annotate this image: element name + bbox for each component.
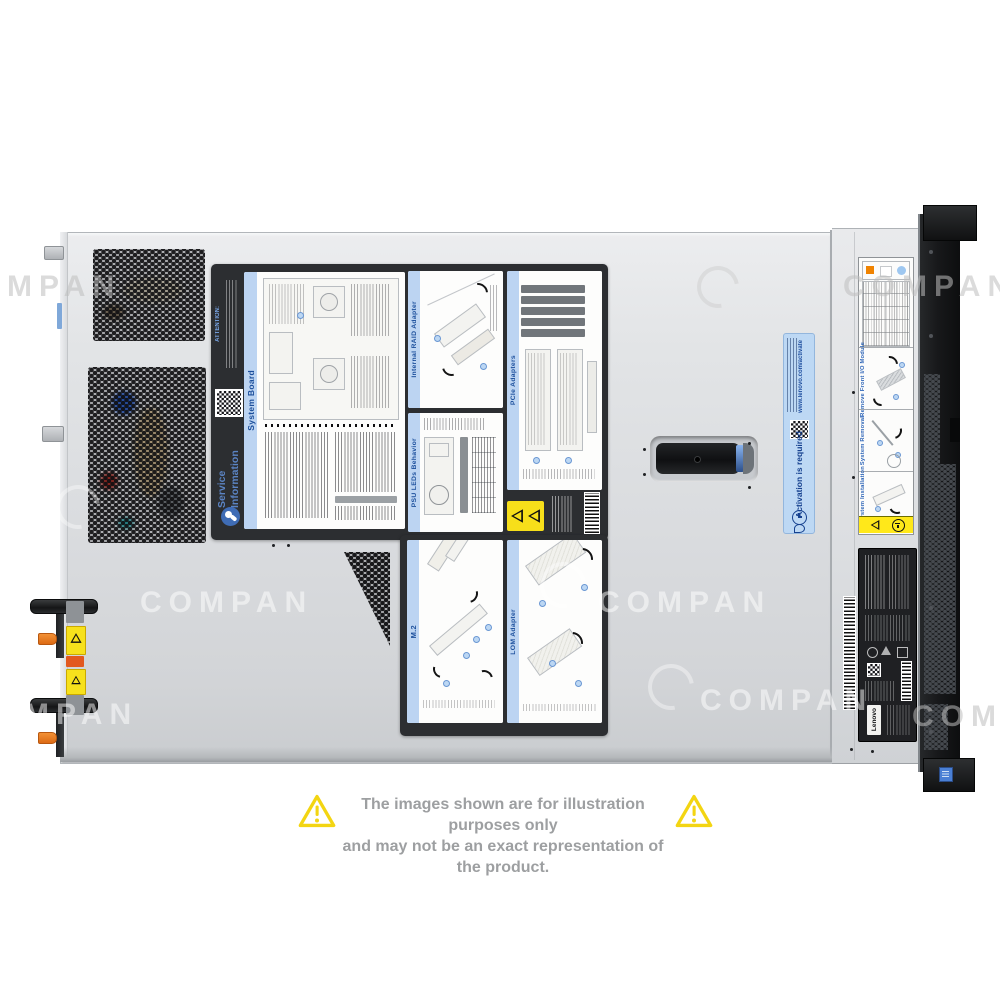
activation-title: Activation is required — [784, 440, 814, 508]
chassis-vent — [88, 367, 206, 543]
panel-title: PSU LEDs Behavior — [411, 438, 418, 507]
electrical-hazard-label — [66, 626, 86, 655]
cert-mark-icon — [897, 647, 908, 658]
rear-port-accent — [57, 303, 62, 329]
service-info-line2: Information — [229, 428, 241, 508]
activation-url-text: www.lenovo.com/activate — [798, 340, 804, 413]
service-info-line1: Service — [216, 428, 228, 508]
psu-release-latch — [38, 633, 57, 645]
recycle-mark-icon — [881, 646, 891, 655]
panel-lom-adapter: LOM Adapter — [507, 540, 602, 723]
panel-m2: M.2 — [407, 540, 503, 723]
qr-code-icon — [215, 389, 243, 417]
panel-title: PCIe Adapters — [510, 355, 517, 405]
orange-led-icon — [866, 266, 874, 274]
disclaimer-line1: The images shown are for illustration pu… — [335, 794, 671, 836]
lenovo-logo-text: Lenovo — [871, 708, 878, 731]
chassis-vent — [93, 249, 205, 341]
card-section: System Installation — [859, 471, 913, 517]
chassis-bottom-edge — [60, 747, 832, 762]
psu-body-edge — [56, 612, 64, 658]
panel-header: M.2 — [407, 540, 419, 723]
psu-led-illustration — [420, 413, 503, 532]
psu-release-latch — [38, 732, 57, 744]
section-title: Remove Front I/O Module — [860, 342, 866, 417]
chassis-rear-tab — [42, 426, 64, 442]
warning-triangle-icon — [871, 520, 880, 530]
warning-triangle-icon — [674, 792, 714, 830]
cover-seam — [830, 230, 832, 761]
warning-triangle-icon — [511, 509, 523, 523]
led-table — [862, 281, 910, 347]
warning-triangle-icon — [528, 509, 540, 523]
pcie-illustration — [519, 271, 602, 490]
panel-header: LOM Adapter — [507, 540, 519, 723]
clock-icon — [792, 510, 807, 525]
rear-service-card: Remove Front I/O Module System Removal S… — [858, 257, 914, 535]
electrical-hazard-label — [66, 669, 86, 695]
cover-release-latch — [650, 436, 758, 482]
activation-sticker: www.lenovo.com/activate Activation is re… — [783, 333, 815, 534]
panel-title: System Board — [246, 370, 256, 431]
service-info-title: Service Information — [212, 428, 244, 508]
panel-title: Internal RAID Adapter — [411, 301, 418, 378]
qr-code-icon — [867, 663, 881, 677]
panel-psu-leds: PSU LEDs Behavior — [408, 413, 503, 532]
psu-body-edge — [56, 711, 64, 757]
activation-title-text: Activation is required — [794, 431, 804, 518]
latch-end-cap — [743, 443, 754, 474]
panel-header: System Board — [244, 272, 257, 529]
blue-led-icon — [897, 266, 906, 275]
activation-logo-icon — [794, 524, 805, 533]
psu-handle — [30, 698, 98, 713]
panel-title: M.2 — [409, 625, 418, 638]
warning-label-orange — [66, 656, 84, 667]
attention-note: ATTENTION: — [215, 278, 224, 370]
product-photo: ATTENTION: Service Information System Bo… — [0, 0, 1000, 1000]
regulatory-label: Lenovo — [858, 548, 917, 742]
bezel-latch — [950, 418, 960, 442]
panel-pcie-adapters: PCIe Adapters — [507, 271, 602, 490]
psu-handle — [30, 599, 98, 614]
service-roundel-icon — [221, 507, 240, 526]
ear-service-label — [939, 767, 953, 782]
two-person-lift-icon — [892, 519, 905, 532]
m2-illustration — [419, 540, 503, 723]
led-legend — [862, 261, 910, 280]
system-board-diagram — [257, 272, 405, 529]
raid-illustration — [420, 271, 503, 408]
warning-label — [507, 501, 544, 531]
psu-info-label — [66, 601, 84, 623]
lenovo-logo: Lenovo — [867, 705, 881, 735]
panel-header: Internal RAID Adapter — [408, 271, 420, 408]
disclaimer-line2: and may not be an exact representation o… — [335, 836, 671, 878]
sticker-text-lines — [787, 338, 798, 412]
serial-barcode-label — [843, 596, 856, 710]
card-section: Remove Front I/O Module — [859, 347, 913, 410]
label-barcode — [901, 661, 912, 701]
panel-internal-raid: Internal RAID Adapter — [408, 271, 503, 408]
section-title: System Removal — [860, 416, 866, 465]
rack-ear-bottom — [923, 758, 975, 792]
cert-mark-icon — [867, 647, 878, 658]
card-section: System Removal — [859, 409, 913, 472]
panel-header: PCIe Adapters — [507, 271, 519, 490]
disclaimer-text: The images shown are for illustration pu… — [335, 794, 671, 878]
chassis-rear-tab — [44, 246, 64, 260]
activation-url: www.lenovo.com/activate — [798, 336, 811, 416]
front-bezel — [918, 214, 960, 772]
label-barcode — [584, 492, 600, 534]
panel-system-board: System Board — [244, 272, 405, 529]
panel-header: PSU LEDs Behavior — [408, 413, 420, 532]
psu-info-label — [66, 695, 84, 715]
lift-warning-strip — [859, 516, 913, 533]
caution-text-lines — [552, 496, 572, 532]
panel-title: LOM Adapter — [510, 609, 517, 655]
lom-illustration — [519, 540, 602, 723]
attention-heading: ATTENTION: — [215, 306, 221, 342]
warning-triangle-icon — [297, 792, 337, 830]
rack-ear-top — [923, 205, 977, 241]
attention-text-lines — [226, 280, 238, 368]
section-title: System Installation — [860, 466, 866, 523]
latch-screw — [694, 456, 701, 463]
